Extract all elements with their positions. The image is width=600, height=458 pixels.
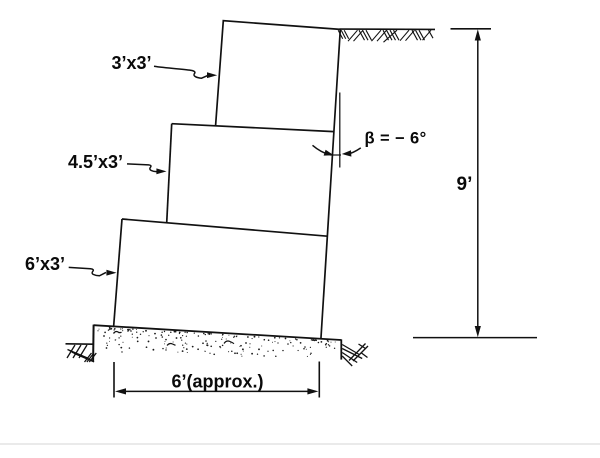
svg-text:4.5’x3’: 4.5’x3’ [68, 152, 123, 172]
svg-text:β = − 6°: β = − 6° [365, 130, 427, 148]
svg-text:6’(approx.): 6’(approx.) [172, 372, 264, 392]
svg-text:6’x3’: 6’x3’ [25, 254, 65, 274]
svg-text:9’: 9’ [457, 174, 473, 195]
svg-text:3’x3’: 3’x3’ [112, 53, 152, 73]
